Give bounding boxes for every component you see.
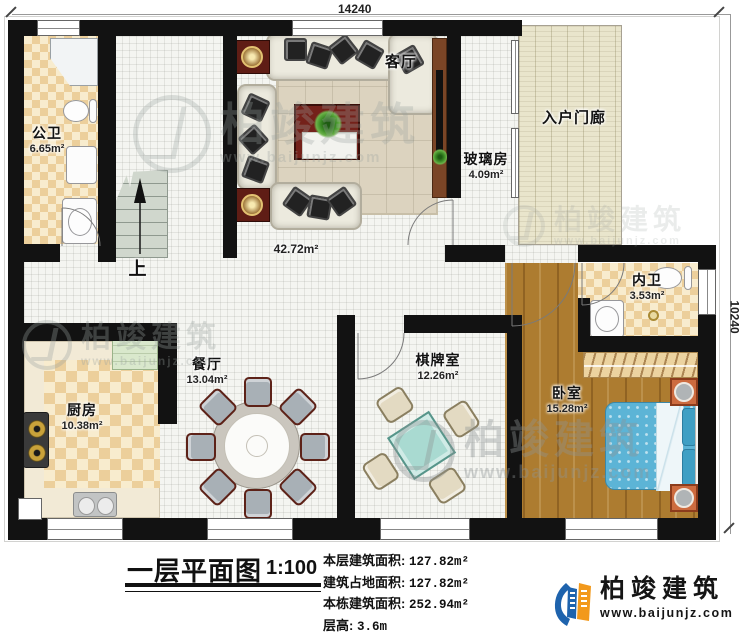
inner-toilet-tank	[684, 266, 692, 290]
dimension-label-top: 14240	[338, 2, 371, 16]
room-label-inner-bath: 内卫 3.53m²	[630, 270, 665, 302]
bed	[605, 402, 697, 490]
stairs-up-label: 上	[129, 255, 148, 281]
prep-counter	[112, 336, 158, 370]
nightstand-lamp-icon	[674, 382, 694, 402]
brand-logo-icon	[551, 576, 593, 628]
room-label-porch: 入户门廊	[542, 107, 606, 128]
corner-window	[18, 498, 42, 520]
wardrobe	[583, 352, 698, 378]
window	[47, 518, 123, 540]
toilet-bowl	[63, 100, 89, 122]
wardrobe-rail	[584, 365, 697, 367]
title-underline-thin	[125, 591, 321, 592]
table-medallion	[241, 194, 263, 216]
wall-segment	[578, 336, 716, 352]
window	[207, 518, 293, 540]
room-label-public-bath: 公卫 6.65m²	[30, 123, 65, 155]
wall-segment	[578, 245, 716, 262]
table-medallion	[241, 46, 263, 68]
toilet-tank	[89, 99, 97, 123]
window	[565, 518, 658, 540]
brand-url: www.baijunjz.com	[600, 606, 733, 620]
brand-logo: 柏竣建筑 www.baijunjz.com	[551, 576, 733, 628]
floor-drain-icon	[648, 310, 659, 321]
room-area-living: 42.72m²	[274, 242, 319, 256]
wall-segment	[98, 20, 116, 262]
window	[37, 20, 80, 36]
nightstand-bottom	[670, 484, 698, 512]
wall-segment	[158, 323, 177, 424]
stat-line: 本层建筑面积: 127.82m²	[323, 551, 469, 573]
wall-segment	[123, 518, 207, 540]
window	[380, 518, 470, 540]
wall-segment	[223, 20, 237, 258]
sink-basin	[78, 497, 95, 515]
side-table-top	[233, 40, 270, 74]
dining-chair	[186, 433, 216, 461]
wall-segment	[470, 518, 565, 540]
wall-segment	[293, 518, 380, 540]
dining-chair	[300, 433, 330, 461]
potted-plant	[314, 110, 342, 138]
stat-line: 层高: 3.6m	[323, 616, 469, 638]
room-label-kitchen: 厨房 10.38m²	[62, 400, 103, 432]
wall-segment	[383, 20, 522, 36]
side-table-bottom	[233, 188, 270, 222]
dimension-line-top	[12, 14, 731, 15]
stat-line: 建筑占地面积: 127.82m²	[323, 573, 469, 595]
bath-sink-basin	[68, 208, 92, 236]
wall-segment	[337, 315, 355, 518]
dimension-label-right: 10240	[728, 300, 742, 333]
wall-segment	[404, 315, 507, 333]
room-label-glass: 玻璃房 4.09m²	[464, 149, 509, 181]
burner-icon	[28, 444, 46, 462]
floor-plan-canvas: 公卫 6.65m² 客厅 42.72m² 玻璃房 4.09m² 入户门廊 内卫 …	[0, 0, 750, 643]
plan-scale: 1:100	[266, 557, 317, 580]
wall-segment	[445, 245, 505, 262]
entry-threshold-floor	[505, 245, 580, 265]
cabinet-plant	[433, 148, 447, 166]
game-chair	[374, 385, 415, 425]
room-label-bedroom: 卧室 15.28m²	[547, 383, 588, 415]
building-stats: 本层建筑面积: 127.82m² 建筑占地面积: 127.82m² 本栋建筑面积…	[323, 551, 469, 637]
coffee-table	[294, 104, 360, 160]
burner-icon	[28, 420, 46, 438]
wall-segment	[447, 36, 461, 198]
wall-segment	[8, 244, 60, 262]
dining-table-center	[246, 435, 268, 457]
glass-room-window	[511, 128, 519, 198]
dining-chair	[244, 377, 272, 407]
room-label-game: 棋牌室 12.26m²	[416, 350, 461, 382]
title-underline	[125, 583, 321, 587]
wall-segment	[8, 323, 177, 341]
kitchen-sink	[73, 492, 117, 517]
dimension-tick	[723, 522, 734, 533]
wall-segment	[8, 20, 24, 540]
glass-room-window	[511, 40, 519, 114]
dimension-line-right	[730, 14, 731, 534]
wall-segment	[8, 20, 37, 36]
bed-sheet	[656, 403, 683, 491]
nightstand-lamp-icon	[674, 488, 694, 508]
window	[292, 20, 383, 36]
stove	[23, 412, 49, 468]
dining-chair	[244, 489, 272, 519]
window	[698, 269, 716, 315]
wall-segment	[8, 518, 47, 540]
mahjong-set	[361, 384, 480, 503]
room-label-dining: 餐厅 13.04m²	[187, 354, 228, 386]
room-label-living: 客厅	[385, 51, 417, 72]
brand-name: 柏竣建筑	[600, 576, 733, 604]
porch-floor	[518, 25, 622, 245]
nightstand-top	[670, 378, 698, 406]
wall-segment	[507, 315, 522, 518]
stat-line: 本栋建筑面积: 252.94m²	[323, 594, 469, 616]
sofa-pillow	[284, 38, 307, 61]
inner-sink-basin	[595, 306, 619, 332]
sink-basin	[97, 497, 114, 515]
washing-machine	[66, 146, 97, 184]
